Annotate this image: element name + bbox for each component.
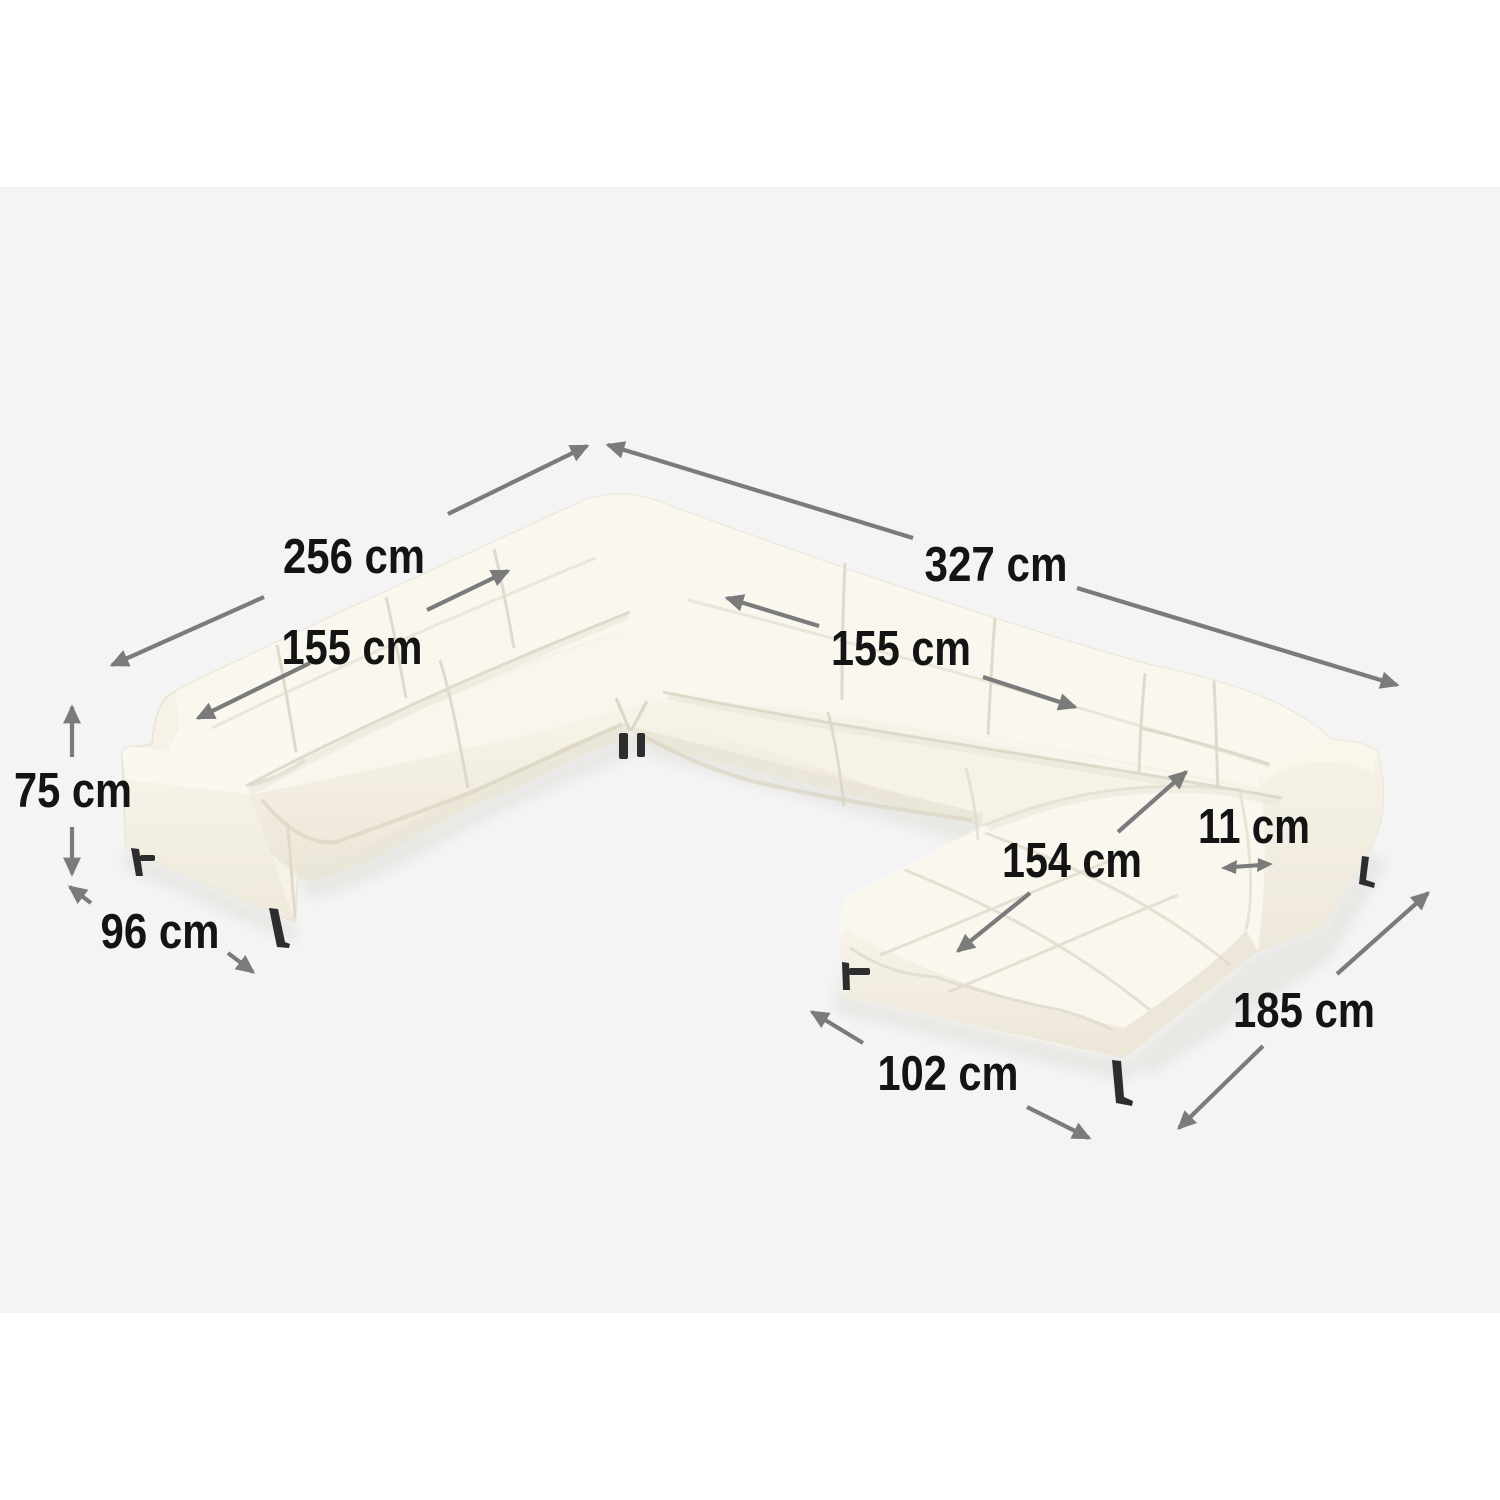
svg-text:102 cm: 102 cm [878,1047,1019,1101]
svg-text:96 cm: 96 cm [101,905,220,959]
svg-text:75 cm: 75 cm [14,764,132,818]
svg-text:155 cm: 155 cm [831,622,971,676]
svg-text:155 cm: 155 cm [282,621,423,675]
svg-text:11 cm: 11 cm [1198,800,1310,854]
svg-text:185 cm: 185 cm [1233,984,1375,1038]
svg-text:154 cm: 154 cm [1002,834,1142,888]
svg-text:327 cm: 327 cm [925,538,1068,592]
svg-text:256 cm: 256 cm [283,530,425,584]
